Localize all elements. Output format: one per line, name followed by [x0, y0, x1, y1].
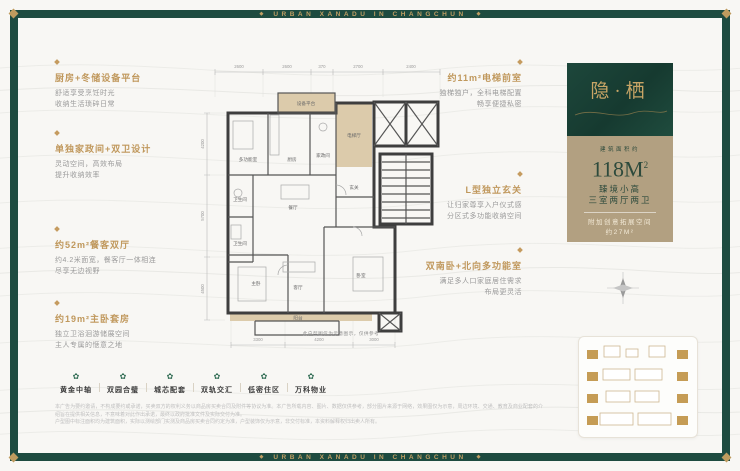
bonus-line: 约27M² — [567, 228, 673, 238]
annotation-title: 约19m²主卧套房 — [55, 312, 205, 325]
annotation-title: 厨房+冬储设备平台 — [55, 71, 205, 84]
feature-label: 城芯配套 — [154, 385, 186, 395]
flower-icon: ✿ — [120, 372, 127, 381]
diamond-marker-icon — [517, 247, 523, 253]
room-label-balcony: 阳台 — [293, 315, 303, 322]
annotation-title: 双南卧+北向多功能室 — [372, 259, 522, 272]
feature-separator — [146, 383, 147, 392]
banner-text: URBAN XANADU IN CHANGCHUN — [273, 454, 466, 461]
product-name: 隐·栖 — [567, 63, 673, 103]
diamond-icon: ◆ — [259, 11, 263, 17]
dim-label: 4500 — [200, 284, 205, 294]
annotation-line: 约4.2米面宽，餐客厅一体相连 — [55, 256, 205, 267]
annotation-line: 主人专属的惬意之地 — [55, 341, 205, 352]
annotation-master-suite: 约19m²主卧套房 独立卫浴洄游储展空间 主人专属的惬意之地 — [55, 301, 205, 351]
area-label: 建筑面积约 — [567, 145, 673, 153]
spec-line: 三室两厅两卫 — [567, 194, 673, 207]
annotation-title: L型独立玄关 — [372, 183, 522, 196]
feature-label: 双园合璧 — [107, 385, 139, 395]
annotation-line: 畅享便捷私密 — [372, 100, 522, 111]
feature-label: 双轨交汇 — [201, 385, 233, 395]
room-label-living: 客厅 — [293, 284, 303, 291]
room-label-equipment: 设备平台 — [297, 100, 316, 107]
bonus-line: 附加创意拓展空间 — [567, 218, 673, 228]
area-number: 118M — [592, 156, 644, 181]
annotation-elevator-lobby: 约11m²电梯前室 独梯独户，全科电梯配置 畅享便捷私密 — [372, 60, 522, 110]
feature-label: 万科物业 — [295, 385, 327, 395]
disclaimer: 本广告为要约邀请，不构成要约或承诺，买卖双方的权利义务以商品房买卖合同及附件等协… — [55, 404, 543, 427]
diamond-marker-icon — [517, 59, 523, 65]
room-label-kitchen: 厨房 — [287, 156, 297, 163]
diamond-marker-icon — [54, 300, 60, 306]
annotation-line: 收纳生活琐碎日常 — [55, 100, 205, 111]
info-panel: 隐·栖 建筑面积约 118M2 臻境小高 三室两厅两卫 附加创意拓展空间 约27… — [567, 63, 673, 242]
small-shaft — [379, 313, 401, 331]
floorplan-caption: 此户型图仅为示意图示，仅供参考 — [303, 330, 379, 337]
flower-icon: ✿ — [167, 372, 174, 381]
compass-icon — [605, 270, 641, 306]
area-superscript: 2 — [644, 160, 649, 170]
feature-item: ✿ 双园合璧 — [102, 372, 144, 395]
door-arcs — [278, 185, 362, 275]
room-label-bath2: 卫生间 — [233, 240, 247, 247]
annotation-title: 单独家政间+双卫设计 — [55, 142, 205, 155]
annotation-line: 分区式多功能收纳空间 — [372, 212, 522, 223]
room-label-multi: 多功能室 — [239, 156, 258, 163]
annotation-title: 约52m²餐客双厅 — [55, 238, 205, 251]
dim-label: 5700 — [200, 211, 205, 221]
room-label-foyer: 玄关 — [349, 184, 359, 191]
banner-text: URBAN XANADU IN CHANGCHUN — [273, 11, 466, 18]
top-banner: ◆ URBAN XANADU IN CHANGCHUN ◆ — [0, 9, 740, 19]
feature-separator — [193, 383, 194, 392]
annotation-line: 舒适享受烹饪时光 — [55, 89, 205, 100]
diamond-icon: ◆ — [477, 454, 481, 460]
building-outlines — [600, 346, 671, 425]
siteplan-card — [578, 336, 698, 438]
room-label-laundry: 家政间 — [316, 152, 330, 159]
annotation-line: 尽享无边视野 — [55, 267, 205, 278]
annotation-line: 灵动空间，高效布局 — [55, 160, 205, 171]
diamond-marker-icon — [54, 130, 60, 136]
room-label-bath1: 卫生间 — [233, 196, 247, 203]
diamond-marker-icon — [54, 59, 60, 65]
annotation-line: 布局更灵活 — [372, 288, 522, 299]
dim-label: 2700 — [353, 64, 363, 69]
annotation-title: 约11m²电梯前室 — [372, 71, 522, 84]
feature-item: ✿ 低密住区 — [243, 372, 285, 395]
flower-icon: ✿ — [261, 372, 268, 381]
dim-label: 2600 — [234, 64, 244, 69]
dim-label: 2600 — [282, 64, 292, 69]
flower-icon: ✿ — [214, 372, 221, 381]
annotation-line: 让归家尊享入户仪式感 — [372, 201, 522, 212]
room-label-dining: 餐厅 — [288, 204, 298, 211]
diamond-icon: ◆ — [477, 11, 481, 17]
feature-item: ✿ 城芯配套 — [149, 372, 191, 395]
annotation-dining-living: 约52m²餐客双厅 约4.2米面宽，餐客厅一体相连 尽享无边视野 — [55, 227, 205, 277]
annotation-housework-bath: 单独家政间+双卫设计 灵动空间，高效布局 提升收纳效率 — [55, 131, 205, 181]
divider — [584, 212, 656, 213]
feature-separator — [287, 383, 288, 392]
disclaimer-line: 本广告为要约邀请，不构成要约或承诺，买卖双方的权利义务以商品房买卖合同及附件等协… — [55, 404, 543, 419]
feature-separator — [240, 383, 241, 392]
feature-item: ✿ 万科物业 — [290, 372, 332, 395]
feature-item: ✿ 双轨交汇 — [196, 372, 238, 395]
feature-item: ✿ 黄金中轴 — [55, 372, 97, 395]
disclaimer-line: 户型图中标注面积均为建筑面积，实际以测绘部门实测及商品房买卖合同约定为准，户型装… — [55, 419, 543, 427]
flower-icon: ✿ — [73, 372, 80, 381]
annotation-line: 满足多人口家庭居住需求 — [372, 277, 522, 288]
diamond-icon: ◆ — [259, 454, 263, 460]
area-value: 118M2 — [567, 153, 673, 181]
annotation-line: 独立卫浴洄游储展空间 — [55, 330, 205, 341]
product-name-card: 隐·栖 — [567, 63, 673, 136]
feature-row: ✿ 黄金中轴 ✿ 双园合璧 ✿ 城芯配套 ✿ 双轨交汇 ✿ 低密住区 ✿ 万科物… — [55, 372, 332, 395]
area-card: 建筑面积约 118M2 臻境小高 三室两厅两卫 附加创意拓展空间 约27M² — [567, 136, 673, 242]
annotation-line: 提升收纳效率 — [55, 171, 205, 182]
poster: ◆ URBAN XANADU IN CHANGCHUN ◆ ◆ URBAN XA… — [0, 0, 740, 471]
dim-label: 3300 — [253, 337, 263, 342]
dim-label: 370 — [318, 64, 326, 69]
annotation-foyer: L型独立玄关 让归家尊享入户仪式感 分区式多功能收纳空间 — [372, 172, 522, 222]
bottom-dimension: 3300 4200 3000 — [231, 337, 395, 348]
signature-flourish-icon — [567, 103, 673, 123]
room-label-elevator-hall: 电梯厅 — [347, 132, 361, 139]
room-label-master: 主卧 — [251, 280, 261, 287]
flower-icon: ✿ — [308, 372, 315, 381]
annotation-kitchen-platform: 厨房+冬储设备平台 舒适享受烹饪时光 收纳生活琐碎日常 — [55, 60, 205, 110]
room-label-bedroom: 卧室 — [356, 272, 366, 279]
annotation-line: 独梯独户，全科电梯配置 — [372, 89, 522, 100]
diamond-marker-icon — [54, 226, 60, 232]
feature-separator — [99, 383, 100, 392]
bottom-banner: ◆ URBAN XANADU IN CHANGCHUN ◆ — [0, 452, 740, 462]
annotation-south-bedrooms: 双南卧+北向多功能室 满足多人口家庭居住需求 布局更灵活 — [372, 248, 522, 298]
dim-label: 4200 — [314, 337, 324, 342]
dim-label: 3000 — [369, 337, 379, 342]
siteplan-map — [579, 337, 697, 437]
feature-label: 低密住区 — [248, 385, 280, 395]
diamond-marker-icon — [517, 171, 523, 177]
feature-label: 黄金中轴 — [60, 385, 92, 395]
